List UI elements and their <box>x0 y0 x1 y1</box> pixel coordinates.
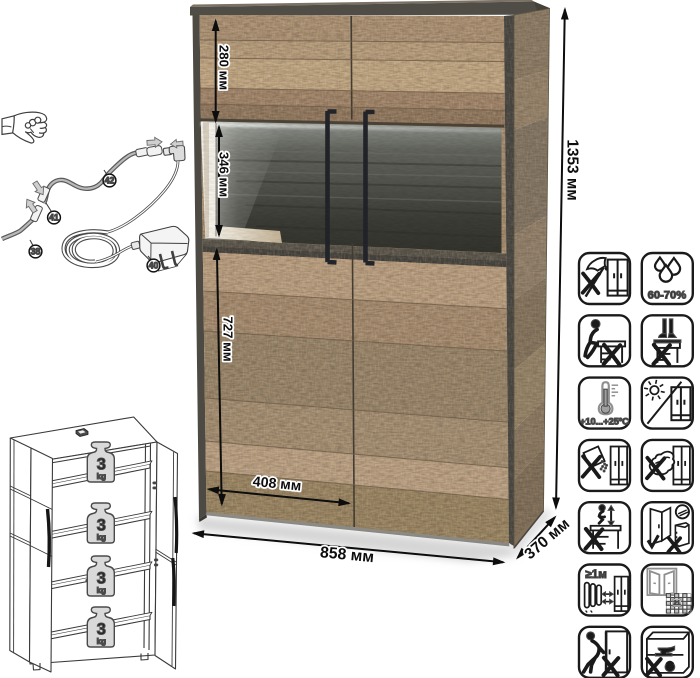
svg-text:727 мм: 727 мм <box>221 316 236 361</box>
svg-text:1353 мм: 1353 мм <box>563 139 580 200</box>
svg-text:41: 41 <box>49 212 59 222</box>
svg-text:42: 42 <box>105 175 115 185</box>
svg-text:kg: kg <box>97 586 106 595</box>
svg-text:346 мм: 346 мм <box>217 152 232 197</box>
svg-text:kg: kg <box>97 637 106 646</box>
svg-text:3: 3 <box>97 620 106 638</box>
svg-text:3: 3 <box>97 455 106 473</box>
svg-text:3: 3 <box>97 569 106 587</box>
svg-text:≥1м: ≥1м <box>585 568 606 581</box>
svg-text:280 мм: 280 мм <box>216 45 231 90</box>
svg-text:kg: kg <box>97 533 106 542</box>
svg-text:+10...+25ºC: +10...+25ºC <box>580 416 629 426</box>
svg-text:21: 21 <box>674 601 681 607</box>
svg-text:60-70%: 60-70% <box>648 290 687 302</box>
svg-text:38: 38 <box>31 246 41 256</box>
svg-text:3: 3 <box>97 516 106 534</box>
svg-text:kg: kg <box>97 472 106 481</box>
svg-text:40: 40 <box>149 260 159 270</box>
